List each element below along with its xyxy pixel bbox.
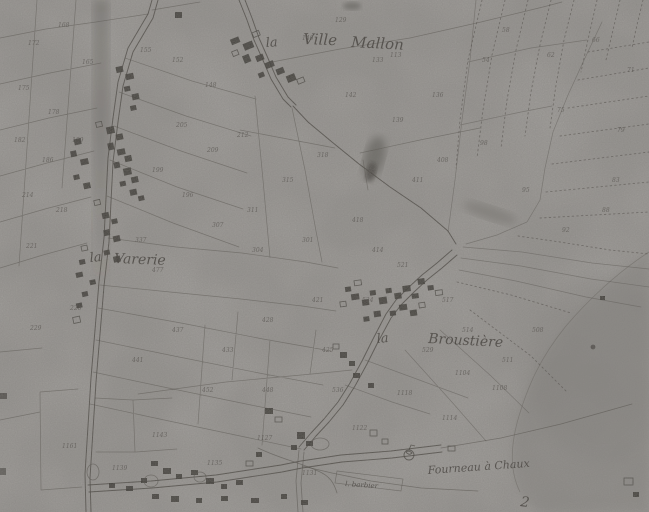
cadastral-map-scan: laVilleMallonlaVarerielaBroustièreFourne… [0, 0, 649, 512]
scan-grain-overlay [0, 0, 649, 512]
map-canvas: laVilleMallonlaVarerielaBroustièreFourne… [0, 0, 649, 512]
